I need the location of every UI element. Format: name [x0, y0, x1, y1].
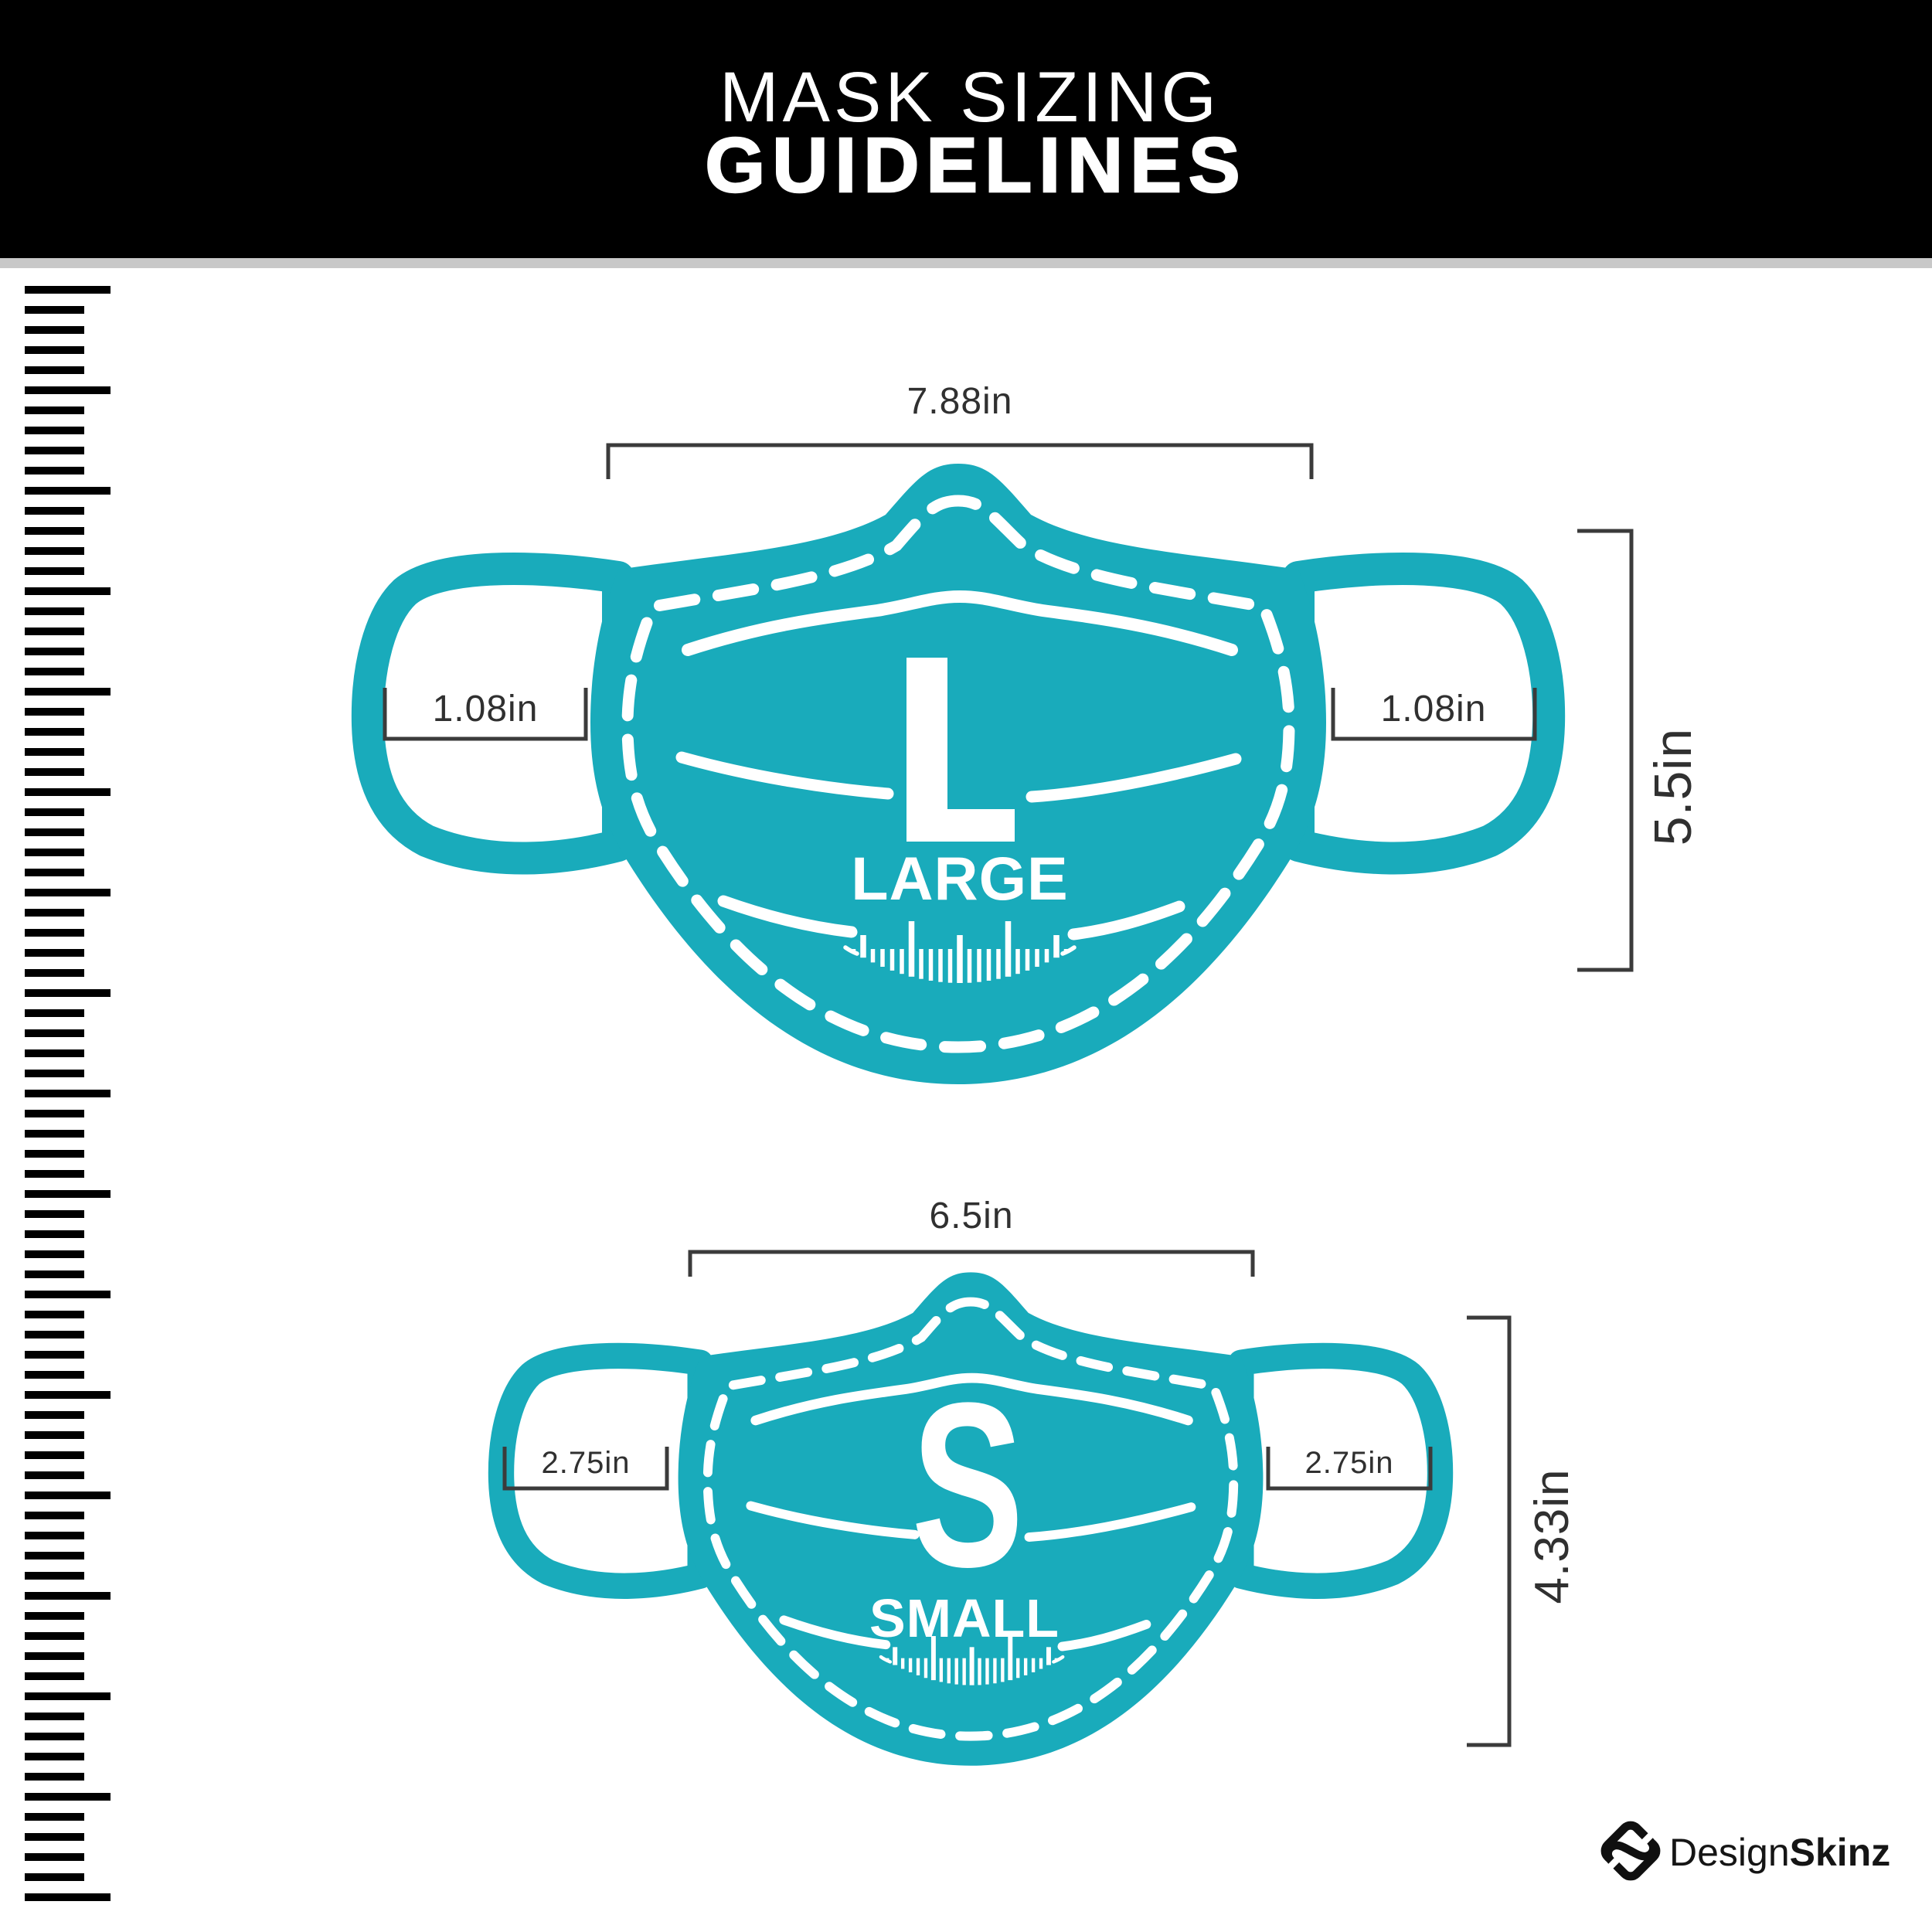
svg-text:LARGE: LARGE [851, 844, 1069, 913]
svg-text:SMALL: SMALL [869, 1588, 1060, 1648]
svg-text:DesignSkinz: DesignSkinz [1669, 1831, 1890, 1874]
svg-text:6.5in: 6.5in [929, 1196, 1013, 1236]
svg-text:5.5in: 5.5in [1644, 728, 1702, 845]
svg-text:1.08in: 1.08in [1381, 689, 1487, 730]
svg-text:1.08in: 1.08in [433, 689, 539, 730]
svg-text:4.33in: 4.33in [1526, 1469, 1579, 1604]
svg-text:2.75in: 2.75in [542, 1446, 631, 1480]
svg-text:7.88in: 7.88in [907, 381, 1013, 422]
svg-text:GUIDELINES: GUIDELINES [705, 122, 1247, 209]
svg-text:S: S [911, 1354, 1024, 1616]
svg-text:2.75in: 2.75in [1305, 1446, 1394, 1480]
